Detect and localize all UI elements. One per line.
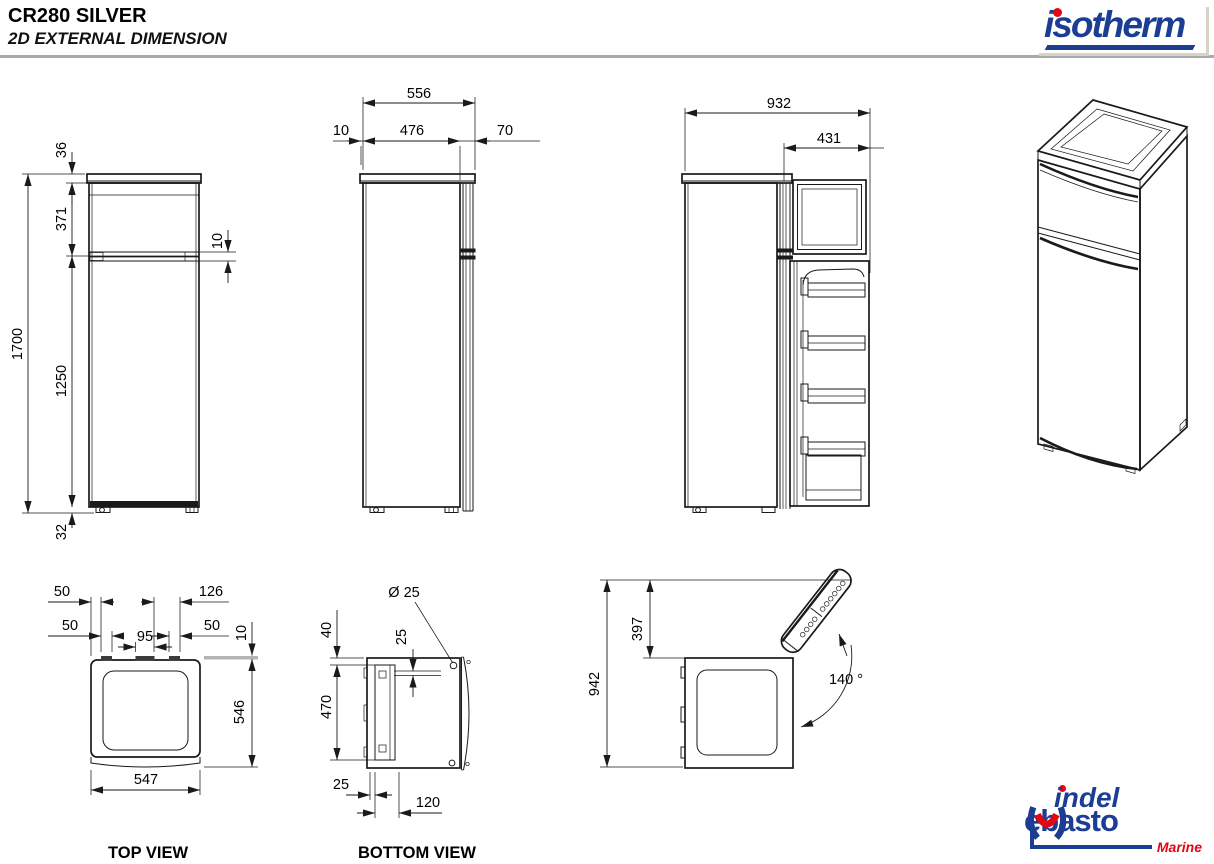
dim-top-right-hinge: 50: [204, 618, 220, 634]
indel-logo-line-horizontal: [1030, 845, 1152, 849]
dim-top-edge-to-hinge: 50: [54, 584, 70, 600]
indel-webasto-logo: indel ebasto Marine: [1016, 788, 1204, 858]
dim-front-upper-door: 371: [54, 207, 70, 231]
dim-top-hinge-span: 126: [199, 584, 223, 600]
dim-open-total-depth: 932: [767, 96, 791, 112]
open-door-shape: [777, 566, 855, 657]
door-swing-view-drawing: 942 397 140 °: [587, 566, 863, 768]
dim-bottom-plate-length: 470: [319, 695, 335, 719]
dim-front-lower-door: 1250: [54, 365, 70, 397]
dim-bottom-top-offset: 40: [319, 622, 335, 638]
dim-top-depth: 546: [232, 700, 248, 724]
dim-swing-door-projection: 397: [630, 617, 646, 641]
dim-bottom-hole-diameter: Ø 25: [388, 585, 419, 601]
dim-side-total-depth: 556: [407, 86, 431, 102]
dim-side-door-depth: 70: [497, 123, 513, 139]
front-view-drawing: 1700 36 371 10 1250 32: [10, 142, 236, 540]
dim-swing-opening-angle: 140 °: [829, 672, 863, 688]
bottom-view-drawing: Ø 25 40 25 470 25 120 BOTTOM VIEW: [319, 585, 476, 862]
top-view-drawing: 50 126 50 50 95 10 546 547 TOP VIEW: [48, 584, 258, 862]
dim-top-left-hinge: 50: [62, 618, 78, 634]
isotherm-dot-icon: [1053, 8, 1062, 17]
top-view-label: TOP VIEW: [108, 844, 189, 862]
side-view-drawing: 556 10 476 70: [333, 86, 540, 513]
dim-bottom-hole-offset: 25: [394, 629, 410, 645]
dim-front-total-height: 1700: [10, 328, 26, 360]
open-side-view-drawing: 932 431: [682, 96, 884, 513]
dim-top-width: 547: [134, 772, 158, 788]
bottom-view-label: BOTTOM VIEW: [358, 844, 476, 862]
dim-swing-total-depth: 942: [587, 672, 603, 696]
wall-reference-line: [204, 656, 258, 660]
dim-side-rear-gap: 10: [333, 123, 349, 139]
marine-tagline: Marine: [1157, 839, 1202, 855]
dim-top-center-hinge: 95: [137, 629, 153, 645]
dim-front-feet-height: 32: [54, 524, 70, 540]
dim-side-body-depth: 476: [400, 123, 424, 139]
dim-front-cap-height: 36: [54, 142, 70, 158]
dim-top-wall-clearance: 10: [234, 625, 250, 641]
dimension-drawing: 1700 36 371 10 1250 32: [0, 0, 1214, 864]
dim-open-door-width: 431: [817, 131, 841, 147]
dim-bottom-plate-width: 120: [416, 795, 440, 811]
dim-front-door-gap: 10: [210, 233, 226, 249]
perspective-view-drawing: [1038, 100, 1187, 474]
dim-bottom-side-offset: 25: [333, 777, 349, 793]
